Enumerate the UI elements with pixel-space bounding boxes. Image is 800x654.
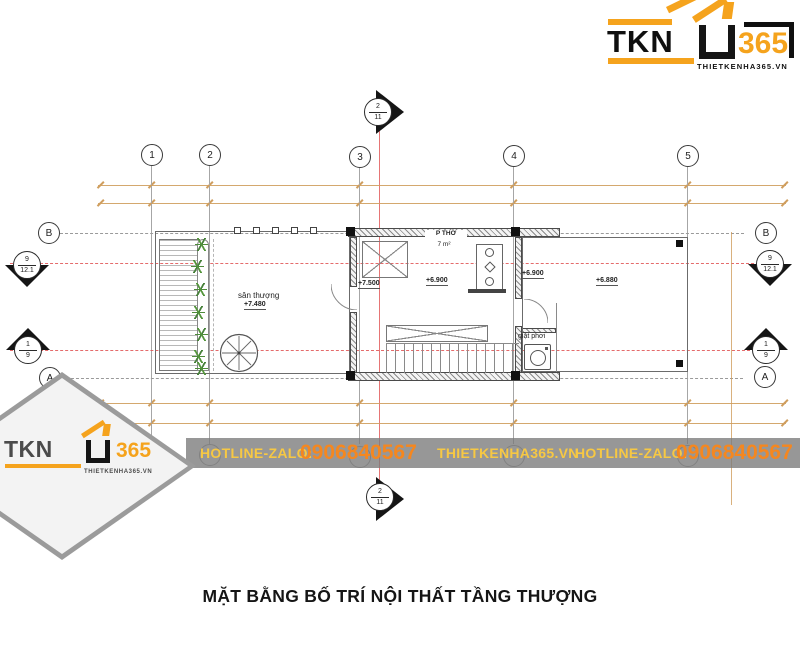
section-marker-left-upper: 912.1 — [13, 251, 41, 279]
watermark-brand-text: TKN — [4, 436, 53, 463]
level-rear-terrace: +6.880 — [596, 277, 618, 286]
grid-bubble-B-left: B — [38, 222, 60, 244]
hotline-phone-right: 0906840567 — [676, 441, 793, 465]
hotline-phone-left: 0906840567 — [300, 441, 417, 465]
grid-bubble-2: 2 — [199, 144, 221, 166]
washing-machine-icon — [524, 344, 551, 370]
wall-left-lower — [350, 312, 357, 374]
column-marker — [346, 227, 355, 236]
grid-bubble-B-right: B — [755, 222, 777, 244]
skylight-void — [362, 241, 408, 278]
level-hall: +7.500 — [358, 280, 380, 289]
level-terrace: +7.480 — [244, 301, 266, 310]
level-worship-room: +6.900 — [426, 277, 448, 286]
wall-mid-upper — [515, 237, 522, 299]
door-arc-terrace — [331, 284, 357, 310]
logo-brand-text: TKN — [607, 24, 674, 60]
dim-line-bottom-2 — [98, 423, 786, 424]
grid-bubble-1: 1 — [141, 144, 163, 166]
section-marker-top: 211 — [364, 98, 392, 126]
grid-bubble-4: 4 — [503, 145, 525, 167]
section-marker-right-lower: 19 — [752, 336, 780, 364]
roof-overhang-dashed — [213, 239, 214, 371]
altar-counter — [476, 244, 503, 290]
logo-underline — [608, 58, 694, 64]
section-marker-left-lower: 19 — [14, 336, 42, 364]
dim-line-bottom-1 — [98, 403, 786, 404]
section-marker-right-upper: 912.1 — [756, 250, 784, 278]
level-laundry: +6.900 — [522, 270, 544, 279]
logo-number-text: 365 — [738, 27, 788, 61]
watermark-underline — [5, 464, 81, 468]
banner-website: THIETKENHA365.VN — [437, 445, 579, 461]
house-icon — [694, 2, 742, 60]
room-name-worship: P THỜ — [425, 230, 467, 237]
dim-line-top-1 — [98, 185, 786, 186]
logo-angle-line-vert — [789, 22, 794, 58]
watermark-house-icon — [82, 424, 116, 464]
section-line-vertical — [379, 126, 380, 483]
tree-icon — [219, 333, 259, 373]
altar-shelf — [468, 289, 506, 293]
section-marker-bottom: 211 — [366, 483, 394, 511]
page: TKN 365 THIETKENHA365.VN — [0, 0, 800, 654]
column-marker — [511, 227, 520, 236]
column-marker — [346, 371, 355, 380]
room-area-worship: 7 m² — [425, 241, 463, 248]
laundry-partition — [556, 303, 557, 372]
dim-line-top-2 — [98, 203, 786, 204]
grid-bubble-5: 5 — [677, 145, 699, 167]
wall-bottom — [348, 372, 560, 381]
hotline-label-left: HOTLINE-ZALO: — [200, 445, 313, 461]
logo-site-text: THIETKENHA365.VN — [697, 62, 788, 71]
watermark-site-text: THIETKENHA365.VN — [84, 469, 152, 475]
door-arc-laundry — [524, 299, 548, 323]
drawing-title: MẶT BẰNG BỐ TRÍ NỘI THẤT TẦNG THƯỢNG — [0, 586, 800, 607]
room-name-terrace: sân thượng — [238, 291, 279, 300]
hotline-label-right: HOTLINE-ZALO: — [575, 445, 688, 461]
watermark-number-text: 365 — [116, 439, 151, 463]
grid-bubble-A-right: A — [754, 366, 776, 388]
column-marker — [676, 240, 683, 247]
grid-bubble-3: 3 — [349, 146, 371, 168]
room-name-laundry: giặt phơi — [518, 333, 545, 340]
wall-left-upper — [350, 237, 357, 287]
stair-treads — [386, 343, 519, 373]
column-marker — [511, 371, 520, 380]
column-marker — [676, 360, 683, 367]
stair-void — [386, 325, 488, 342]
